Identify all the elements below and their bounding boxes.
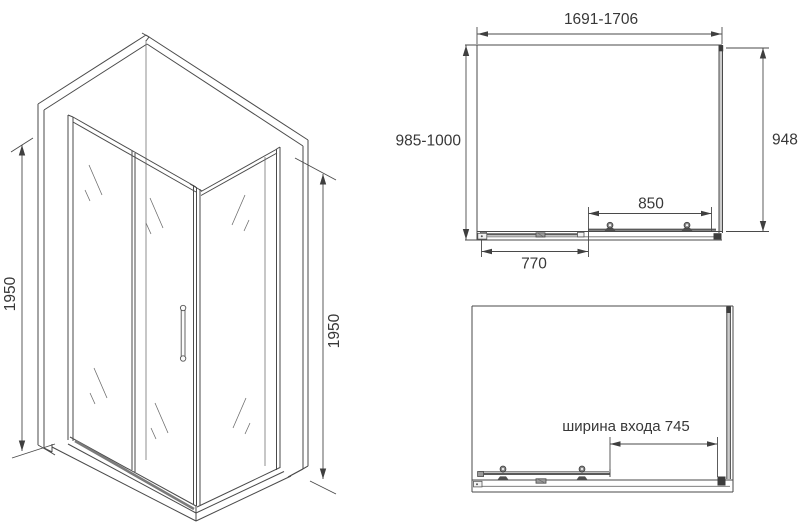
canvas-background: [0, 0, 800, 526]
dim-overall-depth-label: 985-1000: [395, 133, 461, 150]
dim-entry-width-label: ширина входа 745: [562, 418, 690, 435]
technical-drawing-canvas: 1950 1950: [0, 0, 800, 526]
door-stopper: [536, 479, 546, 483]
door-handle: [180, 305, 185, 361]
dim-side-panel-label: 948: [772, 132, 798, 149]
corner-foot: [714, 233, 722, 239]
door-stopper: [536, 233, 545, 237]
corner-bracket: [726, 307, 731, 314]
shower-enclosure-drawing: 1950 1950: [0, 0, 800, 526]
corner-bracket: [719, 45, 724, 51]
dim-height-right-label: 1950: [326, 313, 343, 348]
dim-fixed-panel-label: 770: [521, 256, 547, 273]
dim-height-left-label: 1950: [2, 276, 19, 311]
corner-foot: [718, 477, 726, 486]
dim-door-span-label: 850: [638, 196, 664, 213]
dim-overall-width-label: 1691-1706: [564, 11, 638, 28]
